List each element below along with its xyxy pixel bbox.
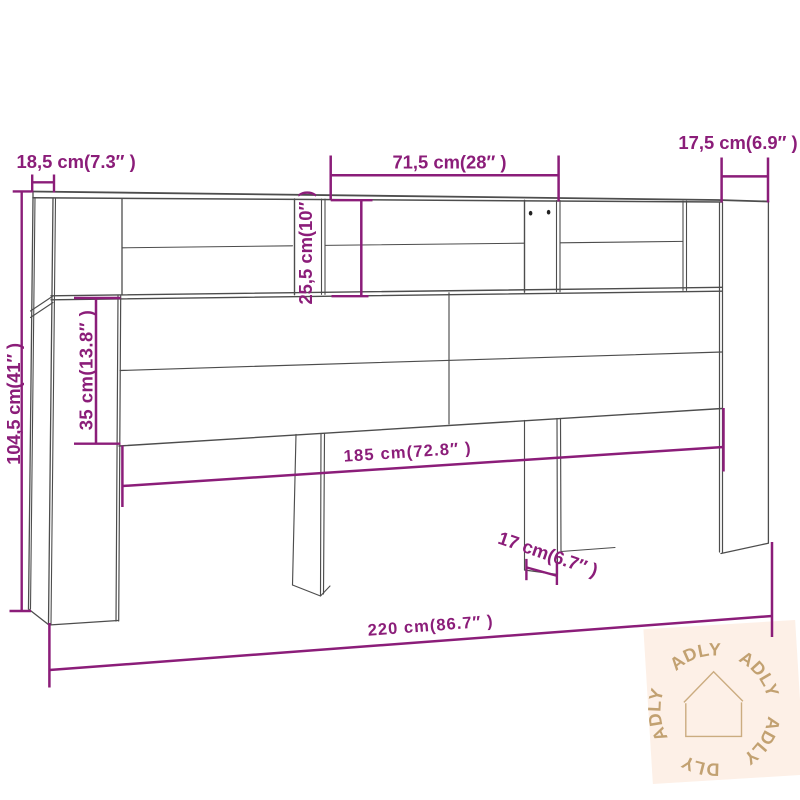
- svg-text:ADLY: ADLY: [0, 0, 720, 780]
- svg-text:18,5 cm(7.3″ ): 18,5 cm(7.3″ ): [17, 151, 136, 172]
- svg-text:35 cm(13.8″ ): 35 cm(13.8″ ): [76, 310, 97, 431]
- svg-text:17,5 cm(6.9″ ): 17,5 cm(6.9″ ): [678, 132, 797, 153]
- svg-text:25,5 cm(10″ ): 25,5 cm(10″ ): [295, 190, 316, 304]
- svg-text:104,5 cm(41″ ): 104,5 cm(41″ ): [3, 343, 24, 465]
- svg-text:71,5 cm(28″ ): 71,5 cm(28″ ): [392, 152, 506, 173]
- svg-text:185 cm(72.8″ ): 185 cm(72.8″ ): [343, 438, 472, 465]
- svg-text:220 cm(86.7″ ): 220 cm(86.7″ ): [367, 611, 494, 639]
